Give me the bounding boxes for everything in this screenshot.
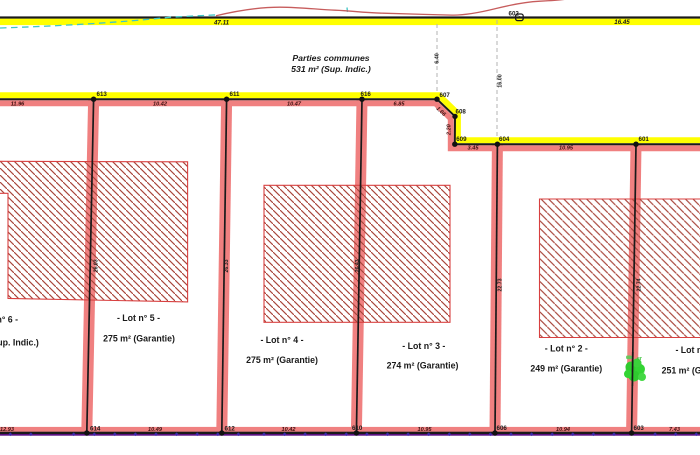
svg-text:274 m² (Garantie): 274 m² (Garantie)	[387, 360, 459, 370]
svg-text:11.96: 11.96	[11, 101, 25, 107]
svg-text:26.33: 26.33	[224, 259, 230, 272]
svg-text:16.00: 16.00	[497, 74, 503, 88]
svg-text:10.42: 10.42	[282, 427, 297, 433]
svg-text:10.47: 10.47	[287, 101, 302, 107]
svg-text:- Lot n° 2 -: - Lot n° 2 -	[545, 344, 588, 354]
svg-text:- Lot n° 3 -: - Lot n° 3 -	[402, 341, 445, 351]
svg-text:613: 613	[97, 91, 108, 98]
svg-text:601: 601	[639, 136, 650, 143]
svg-text:604: 604	[499, 136, 510, 143]
svg-text:6.85: 6.85	[394, 101, 406, 107]
svg-text:22.73: 22.73	[498, 278, 504, 291]
svg-text:- Lot n° 4 -: - Lot n° 4 -	[260, 335, 303, 345]
svg-text:- Lot n° 6 -: - Lot n° 6 -	[0, 315, 18, 325]
svg-text:603: 603	[634, 425, 645, 432]
svg-text:7.43: 7.43	[669, 427, 681, 433]
svg-text:26.03: 26.03	[93, 259, 99, 272]
svg-text:611: 611	[230, 91, 241, 98]
svg-text:- Lot n° 5 -: - Lot n° 5 -	[117, 313, 160, 323]
svg-text:12.93: 12.93	[0, 427, 15, 433]
svg-text:610: 610	[352, 425, 363, 432]
svg-text:283 m² (Sup. Indic.): 283 m² (Sup. Indic.)	[0, 338, 39, 348]
svg-text:609: 609	[456, 136, 467, 143]
svg-text:249 m² (Garantie): 249 m² (Garantie)	[530, 364, 602, 374]
svg-text:275 m² (Garantie): 275 m² (Garantie)	[246, 355, 318, 365]
svg-text:22.74: 22.74	[637, 278, 643, 291]
svg-text:26.43: 26.43	[355, 259, 361, 272]
svg-text:10.95: 10.95	[418, 427, 433, 433]
svg-text:16.45: 16.45	[614, 19, 630, 26]
svg-text:3.45: 3.45	[468, 145, 480, 151]
svg-text:47.11: 47.11	[213, 20, 230, 27]
svg-text:Parties communes: Parties communes	[292, 53, 369, 63]
svg-text:10.49: 10.49	[148, 427, 163, 433]
svg-text:607: 607	[440, 92, 451, 99]
svg-text:606: 606	[497, 425, 508, 432]
svg-text:10.42: 10.42	[153, 101, 168, 107]
svg-text:251 m² (Garantie): 251 m² (Garantie)	[662, 366, 700, 376]
svg-text:er: er	[637, 356, 642, 362]
svg-text:614: 614	[90, 425, 101, 432]
svg-text:616: 616	[361, 91, 372, 98]
svg-text:- Lot n° 1 -: - Lot n° 1 -	[675, 345, 700, 355]
svg-text:608: 608	[456, 109, 467, 116]
svg-text:612: 612	[225, 425, 236, 432]
svg-text:602: 602	[509, 11, 520, 18]
svg-text:10.95: 10.95	[559, 145, 574, 151]
svg-text:275 m² (Garantie): 275 m² (Garantie)	[103, 334, 175, 344]
svg-text:2.20: 2.20	[446, 123, 452, 136]
svg-text:10.94: 10.94	[556, 427, 571, 433]
svg-text:531 m² (Sup. Indic.): 531 m² (Sup. Indic.)	[291, 64, 371, 74]
svg-text:6.40: 6.40	[435, 53, 441, 64]
